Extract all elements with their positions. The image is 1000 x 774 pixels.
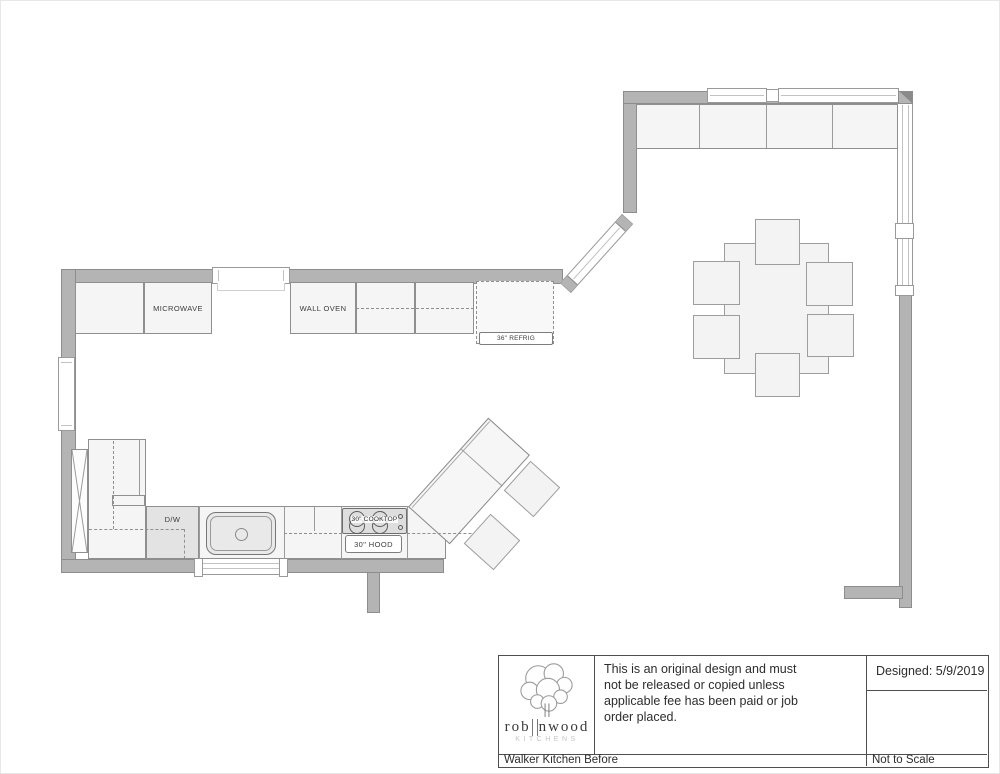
refrigerator-labelbox: 36" REFRIG xyxy=(479,332,553,345)
wall-dining-stub xyxy=(844,586,903,599)
floor-plan-page: MICROWAVE WALL OVEN 36" REFRIG D/W xyxy=(0,0,1000,774)
title-block: rob nwood KITCHENS This is an original d… xyxy=(498,655,989,768)
window-frame-line xyxy=(283,270,284,281)
title-block-divider xyxy=(867,690,987,691)
sink-drain-icon xyxy=(235,528,248,541)
chair xyxy=(806,262,853,306)
chair xyxy=(807,314,854,357)
wall-dining-left xyxy=(623,91,637,213)
upper-cabinet-dashed-line xyxy=(356,308,474,309)
hood-labelbox: 30" HOOD xyxy=(345,535,402,553)
window-frame-line xyxy=(197,568,285,569)
microwave-label: MICROWAVE xyxy=(153,304,203,313)
cabinet-top-1 xyxy=(75,282,144,334)
logo-cell: rob nwood KITCHENS xyxy=(499,656,595,755)
cabinet-divider xyxy=(699,105,700,148)
cabinet-divider xyxy=(766,105,767,148)
cabinet-divider xyxy=(199,506,200,559)
cooktop-label-row: 30" COOKTOP xyxy=(343,516,406,523)
opening-kitchen-left xyxy=(58,357,75,431)
dining-cabinet-row xyxy=(636,104,898,149)
window-dining-top-1 xyxy=(707,88,767,103)
window-sill xyxy=(217,283,285,291)
cabinet-divider xyxy=(832,105,833,148)
window-diagonal xyxy=(560,214,633,293)
logo-subtitle: KITCHENS xyxy=(499,736,595,743)
wall-oven-label: WALL OVEN xyxy=(300,304,347,313)
dashed-line xyxy=(89,529,184,530)
knob-icon xyxy=(398,525,403,530)
window-frame-line xyxy=(573,228,620,280)
wall-dining-right xyxy=(899,294,912,608)
window-frame-line xyxy=(61,425,72,426)
counter-drawer xyxy=(112,495,145,506)
wall-corner xyxy=(898,91,913,104)
scale-note: Not to Scale xyxy=(867,754,987,766)
window-frame-line xyxy=(61,362,72,363)
dishwasher-label: D/W xyxy=(165,515,181,558)
window-frame-line xyxy=(908,105,909,291)
logo-name-left: rob xyxy=(505,719,531,736)
logo-name-right: nwood xyxy=(539,719,590,736)
window-frame-line xyxy=(710,95,764,96)
window-dining-top-2 xyxy=(778,88,899,103)
cooktop-label: 30" COOKTOP xyxy=(351,516,399,523)
dashed-line xyxy=(284,533,342,534)
corner-hatch-icon xyxy=(899,92,912,103)
cabinet-wall-oven: WALL OVEN xyxy=(290,282,356,334)
dishwasher: D/W xyxy=(146,506,199,559)
sink xyxy=(206,512,276,555)
dashed-line xyxy=(184,529,185,559)
window-kitchen-top xyxy=(212,267,290,284)
window-frame-line xyxy=(197,563,285,564)
disclaimer-text: This is an original design and must not … xyxy=(595,656,866,754)
window-dining-right xyxy=(897,102,913,294)
logo-name: rob nwood xyxy=(499,719,595,736)
tall-cabinet-x xyxy=(71,449,88,553)
window-frame-line xyxy=(781,95,896,96)
chair xyxy=(755,219,800,265)
cabinet-microwave: MICROWAVE xyxy=(144,282,212,334)
tree-logo-icon xyxy=(516,659,578,717)
window-frame-line xyxy=(218,270,219,281)
chair xyxy=(693,315,740,359)
project-name: Walker Kitchen Before xyxy=(499,754,866,766)
x-mark-icon xyxy=(72,450,87,552)
window-end-cap xyxy=(895,285,914,296)
chair xyxy=(693,261,740,305)
wall-stub-bottom xyxy=(367,572,380,613)
dashed-line xyxy=(113,441,114,529)
designed-date: Designed: 5/9/2019 xyxy=(867,656,987,690)
peninsula-divider xyxy=(461,449,502,486)
refrigerator-label: 36" REFRIG xyxy=(497,335,535,342)
cabinet-divider xyxy=(314,506,315,531)
window-frame-line xyxy=(902,105,903,291)
hood-label: 30" HOOD xyxy=(354,540,393,549)
window-mullion xyxy=(895,223,914,239)
chair xyxy=(464,514,520,570)
cooktop: 30" COOKTOP xyxy=(342,508,407,534)
logo-trunk-icon xyxy=(532,719,538,736)
chair xyxy=(755,353,800,397)
